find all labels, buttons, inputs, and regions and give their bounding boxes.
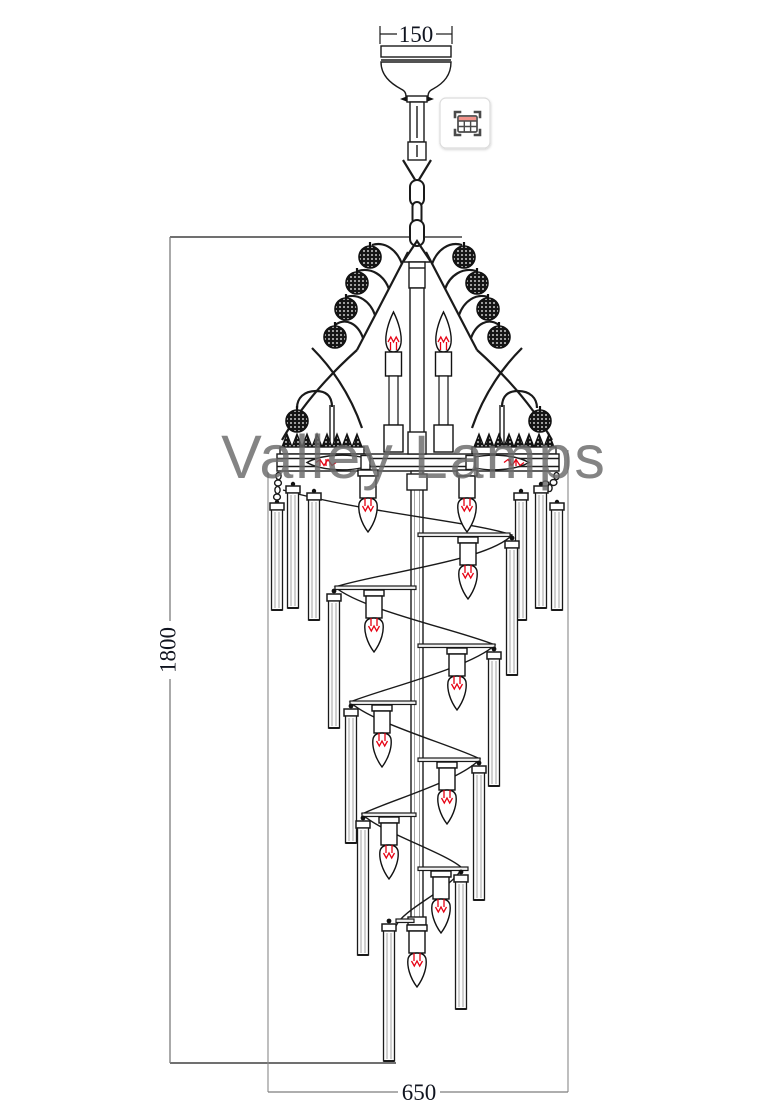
table-capture-button[interactable] bbox=[440, 98, 490, 148]
canopy-dimension-label: 150 bbox=[399, 22, 434, 47]
ceiling-canopy bbox=[381, 46, 451, 103]
chandelier-dimension-diagram: 1800 650 150 bbox=[0, 0, 781, 1113]
hanging-chain bbox=[403, 160, 431, 288]
dim-canopy-150: 150 bbox=[380, 22, 452, 47]
crystal-ball-icon bbox=[346, 268, 368, 294]
center-column bbox=[407, 471, 427, 925]
crystal-ball-icon bbox=[335, 294, 357, 320]
height-dimension-label: 1800 bbox=[155, 627, 180, 673]
watermark-text: Valley Lamps bbox=[221, 423, 607, 491]
crystal-ball-icon bbox=[466, 268, 488, 294]
upper-center-column bbox=[410, 288, 424, 434]
crystal-ball-icon bbox=[453, 242, 475, 268]
width-dimension-label: 650 bbox=[402, 1080, 437, 1105]
technical-drawing: 1800 650 150 bbox=[0, 0, 781, 1113]
crystal-ball-icon bbox=[359, 242, 381, 268]
table-capture-icon bbox=[455, 112, 480, 135]
crystal-ball-icon bbox=[477, 294, 499, 320]
crystal-ball-icon bbox=[488, 322, 510, 348]
stem-rod bbox=[407, 96, 427, 160]
crystal-ball-icon bbox=[324, 322, 346, 348]
